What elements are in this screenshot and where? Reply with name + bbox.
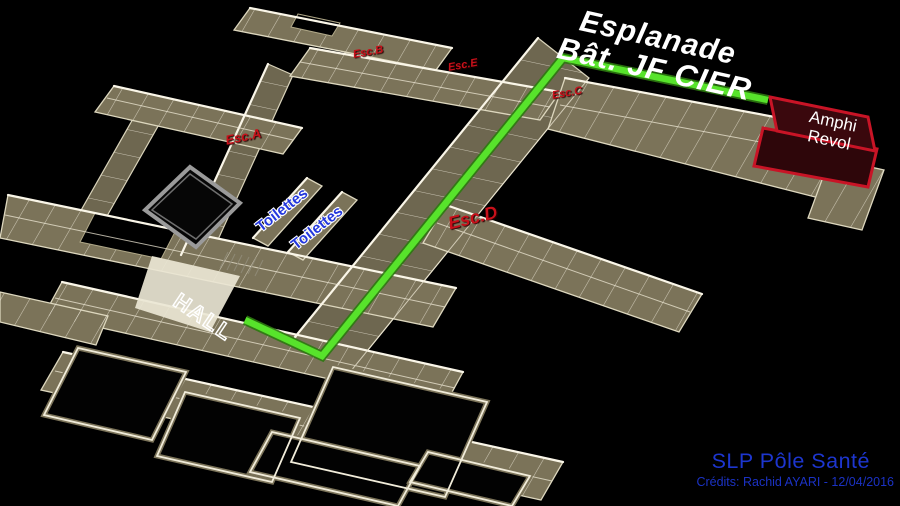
floorplan-canvas <box>0 0 900 506</box>
credits: Crédits: Rachid AYARI - 12/04/2016 <box>696 475 894 489</box>
floor-map: Esplanade Bât. JF CIER Amphi Revol Esc.A… <box>0 0 900 506</box>
site-name: SLP Pôle Santé <box>696 449 870 474</box>
footer: SLP Pôle Santé Crédits: Rachid AYARI - 1… <box>696 449 894 489</box>
